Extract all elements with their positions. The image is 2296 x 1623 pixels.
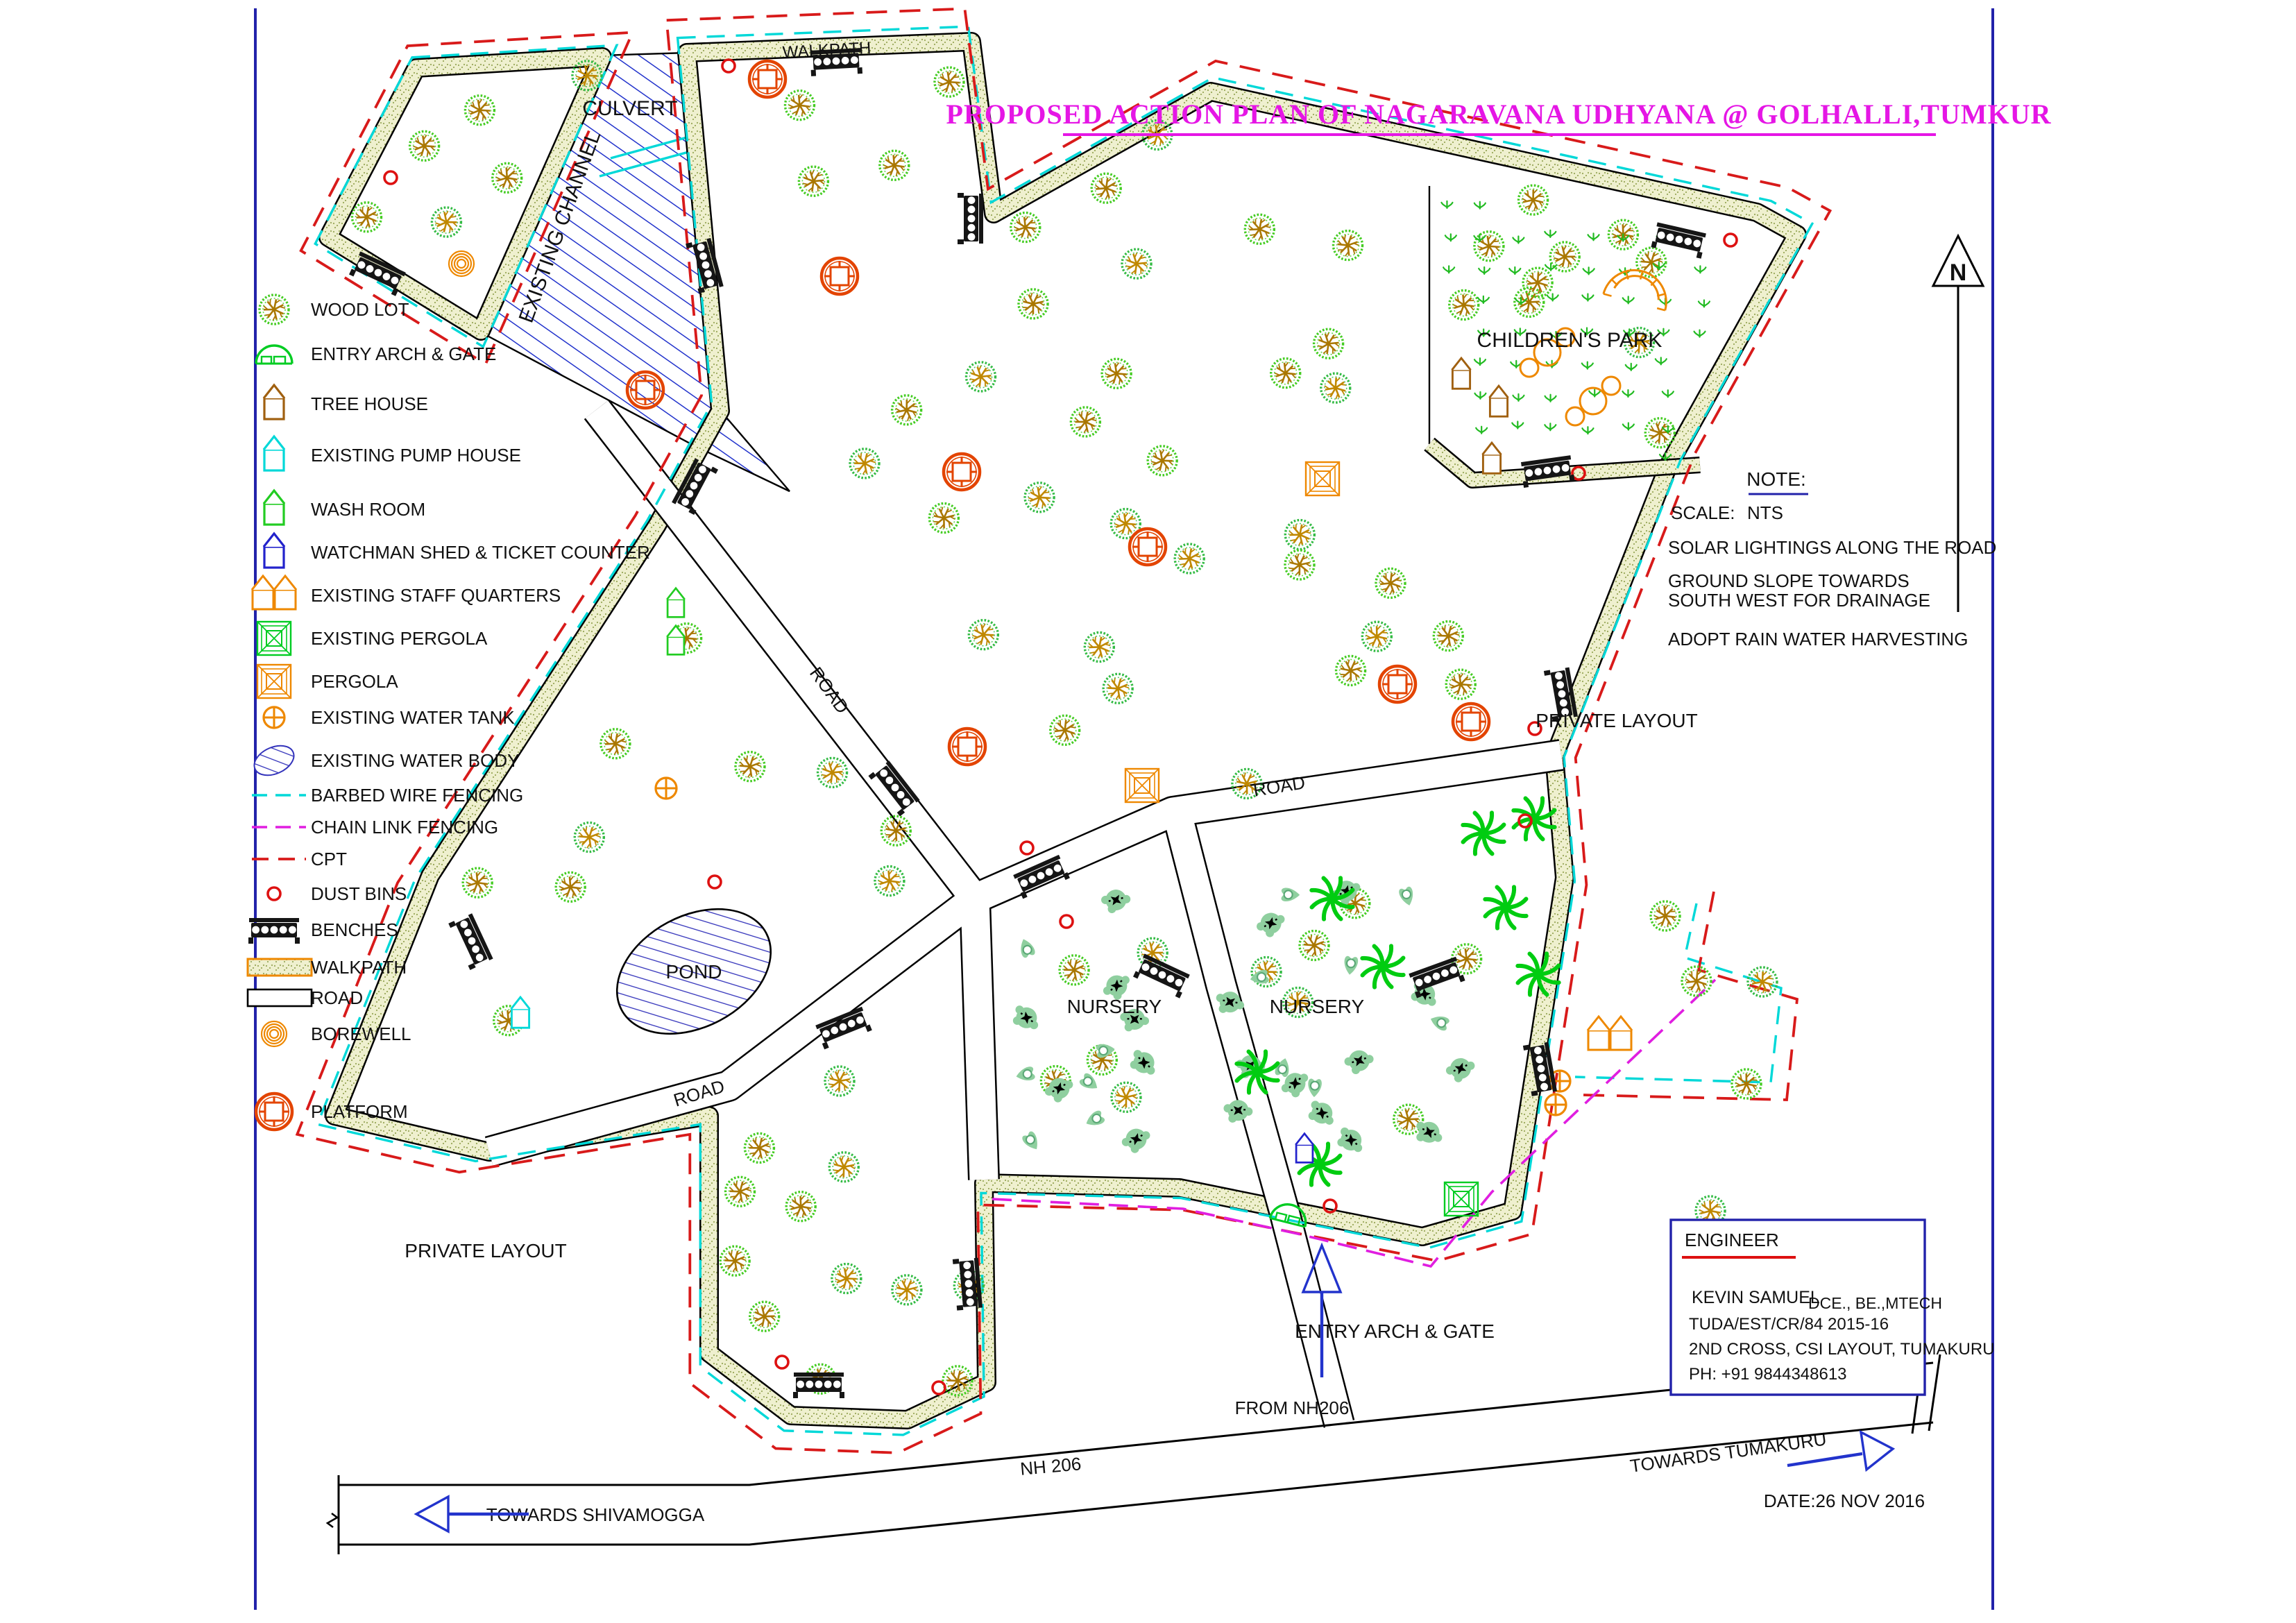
- tree-icon: [260, 295, 289, 324]
- tree-icon: [575, 823, 604, 852]
- legend-label: CHAIN LINK FENCING: [311, 817, 498, 838]
- legend-label: DUST BINS: [311, 883, 407, 904]
- tree-icon: [1060, 955, 1089, 985]
- site-plan-svg: WALKPATHCULVERTEXISTING CHANNELCHILDREN'…: [0, 0, 2296, 1623]
- scale-value: NTS: [1747, 502, 1783, 523]
- tree-icon: [1025, 483, 1054, 512]
- roads: [489, 409, 1561, 1424]
- nursery-plant-icon: [1129, 1048, 1155, 1076]
- tree-icon: [410, 131, 439, 160]
- engineer-box: ENGINEERKEVIN SAMUELDCE., BE.,MTECHTUDA/…: [1671, 1220, 1995, 1395]
- tree-icon: [1085, 632, 1114, 661]
- tree-icon: [1321, 373, 1350, 402]
- tree-icon: [1314, 329, 1343, 358]
- platform-icon: [949, 729, 985, 765]
- dust-bin-icon: [268, 887, 280, 900]
- grass-mark-icon: [1513, 394, 1524, 401]
- legend-label: PERGOLA: [311, 671, 398, 692]
- tree-icon: [750, 1302, 779, 1331]
- tree-icon: [556, 872, 585, 901]
- legend-label: EXISTING WATER TANK: [311, 707, 515, 728]
- tree-icon: [720, 1246, 749, 1275]
- legend-label: BENCHES: [311, 919, 398, 940]
- entry-arch-gate-label: ENTRY ARCH & GATE: [1295, 1320, 1495, 1342]
- nursery-leaf-icon: [1281, 887, 1300, 901]
- house-icon: [264, 436, 284, 470]
- play-rings-icon: [1566, 407, 1584, 425]
- note-line-3: ADOPT RAIN WATER HARVESTING: [1668, 629, 1968, 649]
- tree-icon: [1103, 674, 1132, 703]
- tree-icon: [432, 207, 461, 237]
- legend-item: DUST BINS: [268, 883, 407, 904]
- palm-tree-icon: [1362, 946, 1403, 987]
- grass-mark-icon: [1656, 357, 1667, 364]
- palm-tree-icon: [1463, 813, 1504, 853]
- legend-label: EXISTING PUMP HOUSE: [311, 445, 521, 466]
- legend-item: PERGOLA: [257, 665, 398, 698]
- tree-icon: [1285, 550, 1314, 579]
- tree-icon: [1011, 213, 1040, 242]
- tree-icon: [1091, 173, 1121, 203]
- legend-item: ENTRY ARCH & GATE: [256, 343, 496, 364]
- legend-label: WALKPATH: [311, 957, 407, 978]
- legend-label: PLATFORM: [311, 1101, 408, 1122]
- grass-mark-icon: [1545, 395, 1556, 402]
- dust-bin-icon: [776, 1356, 788, 1368]
- grass-mark-icon: [1589, 390, 1600, 397]
- tree-icon: [1732, 1069, 1761, 1098]
- legend-item: EXISTING PERGOLA: [257, 622, 488, 655]
- nursery-left-label: NURSERY: [1067, 996, 1162, 1017]
- entry-arch-icon: [256, 346, 292, 364]
- house-icon: [1295, 1134, 1313, 1163]
- legend-item: BENCHES: [248, 918, 398, 944]
- water-tank-icon: [264, 707, 284, 728]
- legend-label: EXISTING WATER BODY: [311, 750, 519, 771]
- dust-bin-icon: [384, 171, 397, 184]
- legend-item: ROAD: [248, 987, 363, 1008]
- water-body-icon: [250, 740, 298, 781]
- legend-item: EXISTING PUMP HOUSE: [264, 436, 521, 470]
- pond-label: POND: [666, 961, 722, 983]
- grass-mark-icon: [1515, 298, 1527, 305]
- play-rings-icon: [1602, 377, 1620, 395]
- tree-icon: [1148, 446, 1177, 475]
- bench-icon: [1133, 953, 1191, 999]
- dust-bin-icon: [1724, 234, 1737, 246]
- right-arrow-icon: [1861, 1432, 1893, 1470]
- tree-icon: [1637, 248, 1666, 277]
- pergola-icon: [257, 665, 291, 698]
- play-rings-icon: [1520, 359, 1538, 377]
- tree-icon: [1271, 359, 1300, 388]
- nursery-plant-icon: [1098, 884, 1132, 918]
- platform-icon: [944, 454, 980, 490]
- tree-icon: [1449, 290, 1479, 319]
- tree-icon: [1245, 214, 1274, 244]
- tree-icon: [786, 1192, 815, 1221]
- engineer-qualification: DCE., BE.,MTECH: [1808, 1294, 1942, 1312]
- engineer-heading: ENGINEER: [1685, 1230, 1779, 1250]
- nursery-leaf-icon: [1096, 1042, 1116, 1058]
- house-icon: [667, 626, 685, 655]
- tree-icon: [1474, 232, 1504, 261]
- tree-icon: [1376, 568, 1405, 597]
- tree-icon: [832, 1264, 861, 1293]
- staff-quarters-icon: [252, 576, 296, 609]
- grass-mark-icon: [1509, 267, 1520, 274]
- house-icon: [1452, 358, 1471, 389]
- borewell-icon: [262, 1021, 287, 1046]
- dust-bin-icon: [933, 1382, 945, 1394]
- legend-label: BOREWELL: [311, 1023, 411, 1044]
- grass-mark-icon: [1474, 392, 1486, 399]
- page-title: PROPOSED ACTION PLAN OF NAGARAVANA UDHYA…: [946, 99, 2052, 130]
- engineer-address: 2ND CROSS, CSI LAYOUT, TUMAKURU: [1689, 1340, 1995, 1359]
- grass-mark-icon: [1476, 427, 1487, 434]
- grass-mark-icon: [1582, 294, 1593, 301]
- grass-mark-icon: [1479, 267, 1490, 274]
- grass-mark-icon: [1588, 233, 1599, 240]
- wash-room-icon: [264, 491, 284, 525]
- tree-icon: [829, 1153, 858, 1182]
- tree-icon: [818, 758, 847, 787]
- scale-label: SCALE:: [1671, 502, 1735, 523]
- bench-icon: [958, 193, 983, 244]
- nursery-plant-icon: [1043, 1075, 1074, 1105]
- nursery-leaf-icon: [1398, 886, 1416, 908]
- tree-icon: [929, 503, 958, 532]
- house-icon: [264, 534, 284, 568]
- grass-mark-icon: [1474, 235, 1485, 241]
- legend-item: BOREWELL: [262, 1021, 411, 1046]
- pump-house-icon: [264, 436, 284, 470]
- legend-item: CPT: [252, 849, 347, 869]
- note-line-2b: SOUTH WEST FOR DRAINAGE: [1668, 590, 1930, 611]
- platform-icon: [256, 1094, 292, 1130]
- legend-label: WOOD LOT: [311, 299, 409, 320]
- existing-pergola-icon: [1445, 1182, 1478, 1216]
- grass-mark-icon: [1547, 294, 1558, 300]
- grass-mark-icon: [1545, 423, 1556, 430]
- legend-label: CPT: [311, 849, 347, 869]
- tree-icon: [799, 167, 828, 196]
- private-layout-west-label: PRIVATE LAYOUT: [405, 1240, 566, 1261]
- grass-mark-icon: [1663, 390, 1674, 397]
- house-icon: [667, 588, 685, 618]
- legend-label: WASH ROOM: [311, 499, 425, 520]
- water-tank-icon: [1545, 1094, 1566, 1115]
- legend-item: WOOD LOT: [260, 295, 409, 324]
- pergola-icon: [1125, 769, 1159, 802]
- platform-icon: [1130, 529, 1166, 565]
- tree-icon: [601, 729, 630, 758]
- nursery-plant-icon: [1255, 910, 1286, 940]
- borewell-icon: [262, 1021, 287, 1046]
- notes-block: NOTE:SCALE:NTSSOLAR LIGHTINGS ALONG THE …: [1668, 468, 1996, 649]
- nursery-plant-icon: [1341, 1046, 1375, 1079]
- tree-icon: [465, 96, 494, 125]
- grass-mark-icon: [1583, 267, 1595, 274]
- tree-icon: [1446, 670, 1475, 699]
- platform-icon: [1379, 666, 1415, 702]
- staff-quarters-icon: [252, 576, 296, 609]
- play-rings-icon: [1580, 388, 1606, 414]
- tree-icon: [969, 620, 998, 649]
- tree-icon: [1102, 359, 1131, 388]
- tree-icon: [1645, 418, 1674, 448]
- nursery-leaf-icon: [1021, 1130, 1042, 1153]
- tree-icon: [1112, 1082, 1141, 1112]
- grass-mark-icon: [1626, 364, 1637, 371]
- tree-icon: [1748, 967, 1777, 996]
- legend-label: WATCHMAN SHED & TICKET COUNTER: [311, 542, 650, 563]
- grass-mark-icon: [1694, 266, 1706, 273]
- grass-mark-icon: [1545, 230, 1556, 237]
- grass-mark-icon: [1513, 236, 1524, 243]
- tree-icon: [352, 203, 381, 232]
- private-layout-east-label: PRIVATE LAYOUT: [1536, 710, 1697, 731]
- note-line-1: SOLAR LIGHTINGS ALONG THE ROAD: [1668, 537, 1996, 558]
- tree-icon: [892, 396, 921, 425]
- house-icon: [511, 997, 530, 1028]
- nursery-leaf-icon: [1428, 1012, 1450, 1032]
- legend-label: ROAD: [311, 987, 363, 1008]
- tree-icon: [935, 67, 964, 96]
- water-tank-icon: [656, 778, 677, 799]
- drawing-sheet: WALKPATHCULVERTEXISTING CHANNELCHILDREN'…: [0, 0, 2296, 1623]
- tree-icon: [850, 449, 879, 478]
- culvert-label: CULVERT: [582, 97, 677, 120]
- childrens-park-label: CHILDREN'S PARK: [1477, 329, 1663, 352]
- tree-icon: [1434, 622, 1463, 651]
- existing-pergola-icon: [257, 622, 291, 655]
- nursery-leaf-icon: [1307, 1078, 1322, 1098]
- dust-bin-icon: [1021, 842, 1033, 854]
- nursery-right-label: NURSERY: [1270, 996, 1365, 1017]
- nursery-plant-icon: [1011, 1003, 1039, 1033]
- tree-icon: [825, 1067, 854, 1096]
- entry-arch-icon: [256, 346, 292, 364]
- dust-bin-icon: [1060, 915, 1073, 928]
- dust-bin-icon: [722, 60, 735, 72]
- house-icon: [264, 385, 284, 419]
- nursery-plant-icon: [1307, 1098, 1334, 1127]
- existing-pergola-icon: [257, 622, 291, 655]
- tree-icon: [726, 1177, 755, 1206]
- house-icon: [1490, 386, 1508, 416]
- tree-icon: [493, 163, 522, 192]
- tree-house-icon: [264, 385, 284, 419]
- tree-icon: [1300, 931, 1329, 960]
- legend-label: BARBED WIRE FENCING: [311, 785, 523, 806]
- nursery-leaf-icon: [1083, 1110, 1105, 1130]
- legend-item: CHAIN LINK FENCING: [252, 817, 498, 838]
- house-icon: [1483, 443, 1502, 473]
- north-label: N: [1950, 260, 1967, 286]
- grass-mark-icon: [1694, 330, 1706, 337]
- platform-icon: [1453, 704, 1489, 740]
- grass-mark-icon: [1478, 296, 1489, 303]
- nursery-plant-icon: [1120, 1125, 1151, 1156]
- legend-item: TREE HOUSE: [264, 385, 428, 419]
- from-nh206-label: FROM NH206: [1235, 1397, 1350, 1418]
- tree-icon: [735, 752, 765, 781]
- staff-quarters-icon: [1588, 1017, 1632, 1050]
- dust-bin-icon: [708, 876, 721, 888]
- road-icon: [248, 989, 312, 1006]
- pergola-icon: [257, 665, 291, 698]
- house-icon: [264, 491, 284, 525]
- tree-icon: [1334, 231, 1363, 260]
- grass-mark-icon: [1699, 300, 1710, 307]
- dust-bin-icon: [268, 887, 280, 900]
- grass-mark-icon: [1512, 421, 1523, 428]
- legend-item: EXISTING STAFF QUARTERS: [252, 576, 561, 609]
- note-heading: NOTE:: [1746, 468, 1806, 490]
- tree-icon: [1682, 967, 1711, 996]
- tree-icon: [785, 91, 814, 120]
- tree-icon: [1285, 520, 1314, 550]
- grass-mark-icon: [1474, 358, 1486, 365]
- nursery-leaf-icon: [1014, 1066, 1035, 1083]
- grass-mark-icon: [1443, 266, 1454, 273]
- grass-mark-icon: [1445, 234, 1456, 241]
- tree-icon: [880, 151, 909, 180]
- nursery-leaf-icon: [1017, 937, 1036, 959]
- tree-icon: [1071, 407, 1100, 436]
- tree-icon: [1394, 1105, 1423, 1134]
- watchman-shed-icon: [264, 534, 284, 568]
- tree-icon: [967, 362, 996, 391]
- tree-icon: [892, 1275, 921, 1305]
- legend-label: TREE HOUSE: [311, 393, 428, 414]
- legend-item: EXISTING WATER TANK: [264, 707, 515, 728]
- bench-icon: [1408, 956, 1465, 998]
- tree-icon: [1175, 544, 1204, 573]
- grass-mark-icon: [1582, 427, 1593, 434]
- engineer-reference: TUDA/EST/CR/84 2015-16: [1689, 1315, 1889, 1334]
- walkpath-icon: [248, 959, 312, 976]
- grass-mark-icon: [1623, 423, 1634, 430]
- engineer-phone: PH: +91 9844348613: [1689, 1365, 1847, 1384]
- bench-icon: [448, 912, 493, 970]
- tree-icon: [1336, 656, 1366, 685]
- legend-item: WALKPATH: [248, 957, 407, 978]
- wood-lot-tree-icon: [260, 295, 289, 324]
- legend-label: EXISTING STAFF QUARTERS: [311, 585, 561, 606]
- grass-mark-icon: [1623, 296, 1634, 303]
- water-tank-icon: [264, 707, 284, 728]
- bench-icon: [1651, 222, 1706, 259]
- pergola-icon: [1306, 462, 1339, 495]
- tree-icon: [1051, 715, 1080, 745]
- grass-mark-icon: [1545, 264, 1556, 271]
- legend-item: WASH ROOM: [264, 491, 425, 525]
- bench-icon: [953, 1257, 983, 1311]
- borewell-icon: [449, 251, 474, 276]
- grass-mark-icon: [1622, 390, 1633, 397]
- palm-tree-icon: [1485, 887, 1526, 928]
- nursery-leaf-icon: [1078, 1072, 1101, 1094]
- nursery-plant-icon: [1443, 1054, 1476, 1086]
- legend-label: ENTRY ARCH & GATE: [311, 343, 496, 364]
- engineer-name: KEVIN SAMUEL: [1692, 1288, 1820, 1307]
- tree-icon: [875, 867, 904, 896]
- legend-item: BARBED WIRE FENCING: [252, 785, 523, 806]
- legend-item: WATCHMAN SHED & TICKET COUNTER: [264, 534, 650, 568]
- note-line-2a: GROUND SLOPE TOWARDS: [1668, 570, 1910, 591]
- grass-mark-icon: [1441, 201, 1452, 208]
- tree-icon: [1019, 289, 1048, 318]
- tree-icon: [745, 1133, 774, 1162]
- date-label: DATE:26 NOV 2016: [1764, 1490, 1925, 1511]
- nursery-leaf-icon: [1343, 955, 1359, 976]
- legend-label: EXISTING PERGOLA: [311, 628, 488, 649]
- tree-icon: [1362, 622, 1391, 651]
- nursery-plant-icon: [1336, 1126, 1363, 1154]
- tree-icon: [1651, 901, 1680, 931]
- title-block: PROPOSED ACTION PLAN OF NAGARAVANA UDHYA…: [946, 99, 2052, 135]
- platform-icon: [749, 61, 785, 97]
- legend-item: EXISTING WATER BODY: [250, 740, 520, 781]
- grass-mark-icon: [1474, 202, 1486, 209]
- tree-icon: [1523, 268, 1552, 297]
- platform-icon: [822, 258, 858, 294]
- tree-icon: [1122, 249, 1151, 278]
- grass-mark-icon: [1582, 362, 1593, 369]
- left-arrow-icon: [416, 1497, 448, 1531]
- platform-icon: [256, 1094, 292, 1130]
- tree-icon: [1519, 185, 1548, 214]
- tree-icon: [463, 868, 492, 897]
